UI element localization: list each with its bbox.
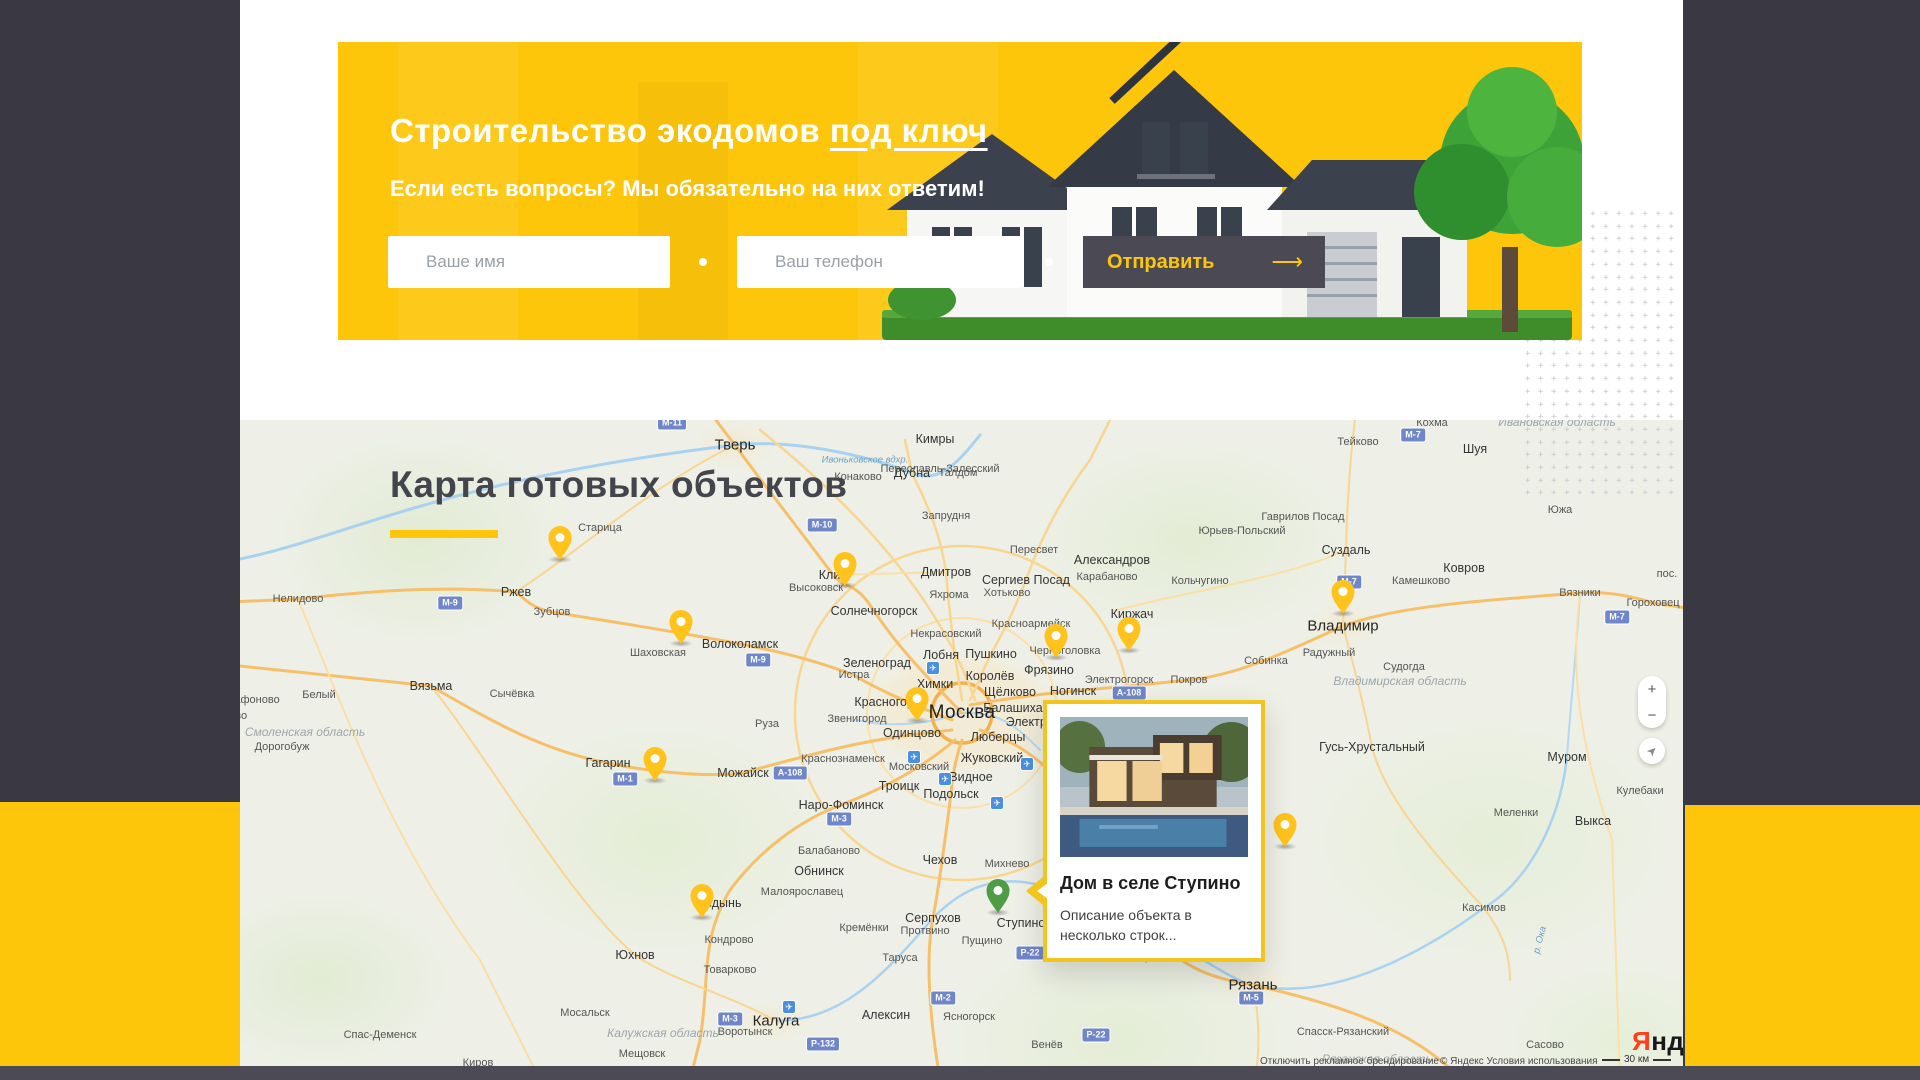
name-input[interactable] bbox=[388, 236, 670, 288]
map-city-label: Судогда bbox=[1383, 661, 1425, 673]
map-city-label: Сергиев Посад bbox=[982, 573, 1070, 587]
separator-dot bbox=[699, 258, 707, 266]
map-city-label: Видное bbox=[949, 770, 992, 784]
map-city-label: Южа bbox=[1548, 504, 1573, 516]
map-city-label: Белый bbox=[302, 689, 335, 701]
map-city-label: Волоколамск bbox=[702, 637, 778, 651]
map-city-label: Королёв bbox=[966, 669, 1015, 683]
map-city-label: Сафоново bbox=[240, 694, 280, 706]
map-city-label: Запрудня bbox=[922, 510, 970, 522]
road-number-badge: М-7 bbox=[1400, 428, 1426, 443]
scale-label: 30 км bbox=[1624, 1054, 1649, 1065]
map-city-label: Наро-Фоминск bbox=[799, 798, 884, 812]
map-city-label: Дорогобуж bbox=[255, 741, 310, 753]
submit-button[interactable]: Отправить ⟶ bbox=[1083, 236, 1325, 288]
map-city-label: Вязники bbox=[1559, 587, 1600, 599]
map-city-label: Юрьев-Польский bbox=[1198, 525, 1285, 537]
map-city-label: Гусь-Хрустальный bbox=[1319, 740, 1425, 754]
map-pin[interactable] bbox=[642, 746, 668, 782]
road-number-badge: А-108 bbox=[1112, 686, 1147, 701]
map-city-label: Москва bbox=[929, 702, 996, 724]
map-pin[interactable] bbox=[904, 686, 930, 722]
map-city-label: Александров bbox=[1074, 553, 1150, 567]
zoom-out-button[interactable]: − bbox=[1638, 702, 1666, 728]
map-city-label: Руза bbox=[755, 718, 779, 730]
map-city-label: Электрогорск bbox=[1085, 674, 1154, 686]
airport-icon: ✈ bbox=[907, 750, 921, 764]
map-pin[interactable] bbox=[1116, 616, 1142, 652]
map-region-label: Смоленская область bbox=[245, 725, 365, 739]
map-city-label: Муром bbox=[1547, 750, 1586, 764]
map-city-label: Шаховская bbox=[630, 647, 686, 659]
yandex-logo-rest: ндекс bbox=[1651, 1026, 1683, 1056]
map-city-label: Меленки bbox=[1494, 807, 1539, 819]
map-pin[interactable] bbox=[547, 525, 573, 561]
map-popup-card[interactable]: Дом в селе Ступино Описание объекта в не… bbox=[1043, 700, 1265, 962]
map-city-label: Подольск bbox=[923, 787, 978, 801]
road-number-badge: М-3 bbox=[717, 1012, 743, 1027]
popup-title: Дом в селе Ступино bbox=[1060, 873, 1248, 894]
yellow-band-right bbox=[1685, 805, 1920, 1066]
map-section-heading: Карта готовых объектов bbox=[390, 464, 847, 506]
map-city-label: Звенигород bbox=[827, 713, 886, 725]
map-city-label: Ржев bbox=[501, 585, 531, 599]
map-city-label: Хотьково bbox=[984, 587, 1031, 599]
arrow-right-icon: ⟶ bbox=[1271, 249, 1303, 275]
map-city-label: Кулебаки bbox=[1616, 785, 1663, 797]
submit-label: Отправить bbox=[1107, 251, 1214, 274]
hero-banner: Строительство экодомов под ключ Если ест… bbox=[338, 42, 1582, 340]
map-city-label: Старица bbox=[578, 522, 622, 534]
airport-icon: ✈ bbox=[990, 796, 1004, 810]
map-city-label: Камешково bbox=[1392, 575, 1450, 587]
map-city-label: Лобня bbox=[923, 648, 959, 662]
map-city-label: Тейково bbox=[1337, 436, 1378, 448]
map-city-label: Истра bbox=[839, 669, 870, 681]
road-number-badge: М-5 bbox=[1238, 991, 1264, 1006]
map-city-label: Солнечногорск bbox=[831, 604, 918, 618]
road-number-badge: М-7 bbox=[1604, 610, 1630, 625]
airport-icon: ✈ bbox=[926, 661, 940, 675]
page: { "theme": { "yellow": "#fdc60b", "dark"… bbox=[0, 0, 1920, 1080]
road-number-badge: М-11 bbox=[657, 420, 687, 431]
map-city-label: пос. bbox=[1657, 568, 1678, 580]
phone-input[interactable] bbox=[737, 236, 1022, 288]
map-city-label: Кимры bbox=[916, 432, 955, 446]
map-pin-selected[interactable] bbox=[985, 878, 1011, 914]
map-city-label: Таруса bbox=[882, 952, 917, 964]
map-pin[interactable] bbox=[668, 609, 694, 645]
road-number-badge: М-2 bbox=[930, 991, 956, 1006]
separator-dot bbox=[1045, 258, 1053, 266]
map-city-label: Одинцово bbox=[883, 726, 941, 740]
map-city-label: Пересвет bbox=[1010, 544, 1058, 556]
hero-title: Строительство экодомов под ключ bbox=[390, 112, 988, 150]
airport-icon: ✈ bbox=[782, 1000, 796, 1014]
map-region-label: Владимирская область bbox=[1333, 674, 1466, 688]
map-city-label: Кремёнки bbox=[839, 922, 888, 934]
content-column: + + + + + + + + + + + + + + + + + + + + … bbox=[240, 0, 1683, 1080]
location-arrow-icon: ➤ bbox=[1643, 742, 1660, 759]
road-number-badge: Р-132 bbox=[806, 1037, 840, 1052]
map-city-label: Фрязино bbox=[1024, 663, 1074, 677]
map-city-label: Нелидово bbox=[273, 593, 324, 605]
map-pin[interactable] bbox=[1043, 623, 1069, 659]
road-number-badge: Р-22 bbox=[1081, 1028, 1110, 1043]
map-city-label: Владимир bbox=[1307, 618, 1378, 635]
map-city-label: Обнинск bbox=[794, 864, 843, 878]
airport-icon: ✈ bbox=[1020, 757, 1034, 771]
airport-icon: ✈ bbox=[938, 772, 952, 786]
map-region-label: Калужская область bbox=[607, 1026, 719, 1040]
map-city-label: Ступино bbox=[997, 916, 1046, 930]
map-city-label: Спасск-Рязанский bbox=[1297, 1026, 1389, 1038]
map-city-label: Калуга bbox=[753, 1013, 800, 1030]
map-city-label: Протвино bbox=[900, 925, 949, 937]
map-city-label: Зеленоград bbox=[843, 656, 911, 670]
map-city-label: Сасово bbox=[1526, 1039, 1564, 1051]
road-number-badge: М-1 bbox=[612, 772, 638, 787]
map-city-label: Ковров bbox=[1443, 561, 1484, 575]
map-city-label: Ярцево bbox=[240, 710, 247, 722]
road-number-badge: Р-22 bbox=[1015, 946, 1044, 961]
map-city-label: Михнево bbox=[985, 858, 1030, 870]
map-city-label: Троицк bbox=[879, 779, 919, 793]
map-city-label: Гороховец bbox=[1626, 597, 1679, 609]
map-pin[interactable] bbox=[1272, 812, 1298, 848]
map-city-label: Люберцы bbox=[971, 730, 1026, 744]
map-city-label: Сычёвка bbox=[490, 688, 535, 700]
map-city-label: Жуковский bbox=[961, 751, 1023, 765]
map-city-label: Выкса bbox=[1575, 814, 1611, 828]
map-city-label: Вязьма bbox=[410, 679, 453, 693]
hero-title-main: Строительство экодомов bbox=[390, 112, 820, 149]
map-city-label: Суздаль bbox=[1322, 543, 1371, 557]
road-number-badge: М-10 bbox=[807, 518, 838, 533]
map-city-label: Дмитров bbox=[921, 565, 971, 579]
popup-house-photo bbox=[1060, 717, 1248, 857]
map-city-label: Чехов bbox=[923, 853, 958, 867]
map-pin[interactable] bbox=[832, 551, 858, 587]
map-city-label: Юхнов bbox=[615, 948, 654, 962]
map-city-label: Балабаново bbox=[798, 845, 860, 857]
yandex-logo-ya: Я bbox=[1632, 1026, 1651, 1056]
map-scale: 30 км bbox=[1602, 1054, 1671, 1065]
map-city-label: Щёлково bbox=[984, 685, 1036, 699]
map-city-label: Радужный bbox=[1303, 647, 1356, 659]
road-number-badge: М-3 bbox=[826, 812, 852, 827]
footer-bar bbox=[0, 1066, 1920, 1080]
map-city-label: Спас-Деменск bbox=[344, 1029, 417, 1041]
map-city-label: Ногинск bbox=[1050, 684, 1096, 698]
heading-underline-decoration bbox=[390, 530, 498, 538]
map-city-label: Мосальск bbox=[560, 1007, 609, 1019]
map-city-label: Кондрово bbox=[704, 934, 753, 946]
road-number-badge: А-108 bbox=[773, 766, 808, 781]
zoom-control: + − bbox=[1638, 676, 1666, 728]
map-city-label: Краснознаменск bbox=[801, 753, 885, 765]
map-city-label: Ясногорск bbox=[943, 1011, 995, 1023]
geolocate-button[interactable]: ➤ bbox=[1639, 738, 1665, 764]
hero-title-link[interactable]: под ключ bbox=[830, 112, 988, 149]
zoom-in-button[interactable]: + bbox=[1638, 676, 1666, 702]
map-city-label: Покров bbox=[1171, 674, 1208, 686]
map-city-label: Тверь bbox=[715, 437, 756, 454]
map-region-label: Ивановская область bbox=[1498, 420, 1616, 429]
yandex-logo[interactable]: Яндекс bbox=[1632, 1026, 1683, 1057]
map-pin[interactable] bbox=[689, 883, 715, 919]
hero-subtitle: Если есть вопросы? Мы обязательно на них… bbox=[390, 176, 985, 202]
map-city-label: Гаврилов Посад bbox=[1261, 511, 1344, 523]
map-city-label: Яхрома bbox=[929, 589, 968, 601]
map-city-label: Пушкино bbox=[965, 647, 1017, 661]
map-city-label: Некрасовский bbox=[910, 628, 981, 640]
map-city-label: Товарково bbox=[704, 964, 757, 976]
map-pin[interactable] bbox=[1330, 579, 1356, 615]
yellow-band-left bbox=[0, 802, 240, 1066]
map-city-label: Пущино bbox=[962, 935, 1003, 947]
map-city-label: Малоярославец bbox=[761, 886, 843, 898]
yandex-map[interactable]: ТверьКимрыКонаковоДубнаТалдомЗапрудняПер… bbox=[240, 420, 1683, 1080]
map-city-label: Шуя bbox=[1463, 442, 1487, 456]
map-city-label: Карабаново bbox=[1077, 571, 1138, 583]
map-city-label: Собинка bbox=[1244, 655, 1288, 667]
map-city-label: Зубцов bbox=[534, 606, 571, 618]
map-city-label: Гагарин bbox=[585, 756, 630, 770]
map-city-label: Венёв bbox=[1031, 1039, 1063, 1051]
popup-description: Описание объекта в несколько строк... bbox=[1060, 906, 1248, 945]
map-city-label: Кольчугино bbox=[1171, 575, 1228, 587]
map-city-label: Мещовск bbox=[619, 1048, 665, 1060]
map-city-label: Алексин bbox=[862, 1008, 910, 1022]
road-number-badge: М-9 bbox=[437, 596, 463, 611]
map-city-label: Серпухов bbox=[905, 911, 961, 925]
map-city-label: Касимов bbox=[1462, 902, 1506, 914]
map-city-label: Можайск bbox=[717, 766, 768, 780]
road-number-badge: М-9 bbox=[745, 653, 771, 668]
